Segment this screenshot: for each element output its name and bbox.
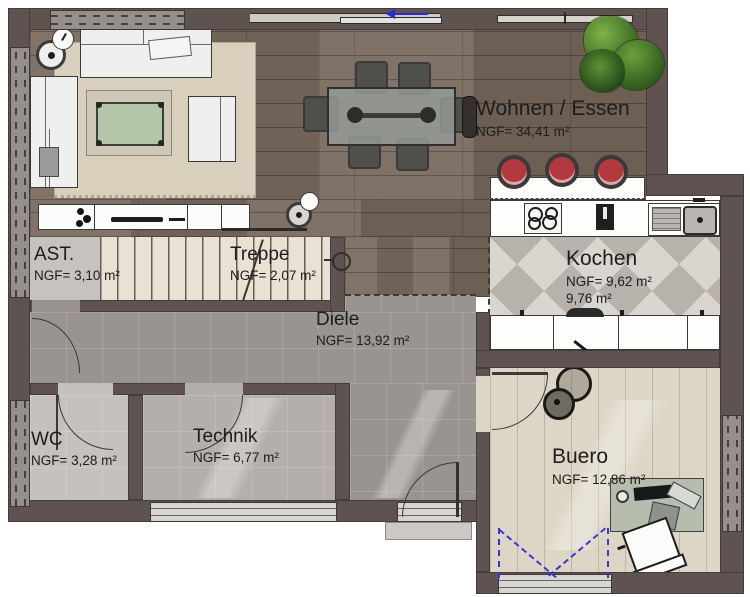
sideboard-divider	[221, 205, 222, 229]
wall-kitchen-bottom	[476, 350, 720, 368]
room-area: NGF= 3,28 m²	[31, 452, 117, 469]
outlet-symbol-stem	[324, 259, 333, 261]
lamp-tick	[61, 33, 67, 41]
sideboard	[38, 204, 250, 230]
lamp-icon	[52, 28, 74, 50]
sofa-back-line	[81, 44, 211, 45]
table-corner-dot	[158, 102, 164, 108]
soundbar	[111, 217, 163, 222]
decor-dot	[77, 208, 84, 215]
small-appliance	[596, 204, 614, 230]
cabinet-tick	[520, 310, 524, 316]
cabinet-divider	[687, 316, 688, 349]
room-area: NGF= 6,77 m²	[193, 449, 279, 466]
sofa	[80, 29, 212, 78]
hall-boundary-dashed-line	[345, 294, 476, 296]
wall-stairs-right	[330, 237, 345, 312]
floor-plan: Wohnen / Essen NGF= 34,41 m² AST. NGF= 3…	[0, 0, 750, 597]
room-label-technik: Technik NGF= 6,77 m²	[193, 425, 279, 467]
room-name: Diele	[316, 308, 409, 332]
burner	[542, 215, 557, 230]
table-corner-dot	[96, 140, 102, 146]
armchair	[188, 96, 236, 162]
outlet-symbol-icon	[332, 252, 351, 271]
office-door-opening	[476, 376, 490, 432]
room-area-2: 9,76 m²	[566, 290, 652, 307]
room-label-buero: Buero NGF= 12,86 m²	[552, 444, 645, 488]
room-area: NGF= 13,92 m²	[316, 332, 409, 349]
room-label-treppe: Treppe NGF= 2,07 m²	[230, 243, 316, 285]
appliance-slot	[603, 207, 607, 219]
lamp-dot	[48, 52, 55, 59]
desk-lamp-icon	[616, 490, 629, 503]
cabinet-divider	[553, 316, 554, 349]
room-name: AST.	[34, 243, 120, 267]
room-label-wohnen-essen: Wohnen / Essen NGF= 34,41 m²	[476, 96, 630, 140]
wall-wc-technik-divider	[128, 395, 143, 500]
lamp-dot	[554, 399, 560, 405]
cabinet-tick	[700, 310, 704, 316]
kitchen-boundary-dashed-line	[488, 237, 490, 315]
sofa-pillow	[148, 36, 192, 60]
slide-direction-arrow	[394, 13, 428, 15]
office-door-leaf	[492, 372, 548, 375]
room-area: NGF= 3,10 m²	[34, 267, 120, 284]
window-left-living	[10, 47, 30, 298]
table-leg	[420, 107, 436, 123]
room-area: NGF= 34,41 m²	[476, 123, 630, 140]
corner-sofa-pillow	[39, 147, 59, 177]
burner	[528, 217, 541, 230]
french-door-dashed-right	[607, 528, 609, 578]
room-label-kochen: Kochen NGF= 9,62 m² 9,76 m²	[566, 246, 652, 307]
dining-table	[327, 87, 456, 146]
decor-dot	[83, 215, 91, 223]
drainboard	[652, 207, 681, 231]
wall-technik-right	[335, 383, 350, 500]
room-name: Buero	[552, 444, 645, 471]
table-corner-dot	[158, 140, 164, 146]
technik-door-opening	[185, 383, 243, 395]
kitchen-lower-cabinets	[490, 315, 720, 350]
glazing-mullion	[564, 12, 566, 24]
room-label-wc: WC NGF= 3,28 m²	[31, 428, 117, 470]
room-area: NGF= 2,07 m²	[230, 267, 316, 284]
sofa-cushion-line	[143, 30, 144, 44]
decor-mark	[169, 218, 185, 221]
sink-unit	[648, 203, 720, 236]
coffee-table-glass	[96, 102, 164, 146]
wall-right-lower	[720, 196, 744, 594]
room-area: NGF= 9,62 m²	[566, 273, 652, 290]
lamp-icon	[300, 192, 319, 211]
plant	[580, 50, 624, 92]
window-left-wc	[10, 400, 30, 507]
stove	[524, 203, 562, 234]
room-name: WC	[31, 428, 117, 452]
sink-basin	[683, 206, 717, 235]
hood-icon	[566, 308, 604, 317]
sideboard-divider	[187, 205, 188, 229]
wc-door-opening	[58, 383, 113, 395]
shelf-line	[222, 228, 307, 231]
bar-stool	[497, 155, 531, 189]
wall-radiator	[462, 96, 477, 138]
room-name: Wohnen / Essen	[476, 96, 630, 123]
window-bottom-technik	[150, 502, 337, 522]
cabinet-tick	[620, 310, 624, 316]
table-leg	[347, 107, 363, 123]
storage-door-opening	[32, 300, 80, 312]
cabinet-divider	[618, 316, 619, 349]
wood-floor-right-of-stairs	[345, 237, 490, 297]
slide-arrow-head-icon	[386, 9, 395, 19]
wall-right-upper	[646, 8, 668, 196]
room-name: Kochen	[566, 246, 652, 273]
decor-dot	[76, 220, 83, 227]
sideboard-divider	[94, 205, 95, 229]
room-area: NGF= 12,86 m²	[552, 471, 645, 488]
room-name: Treppe	[230, 243, 316, 267]
faucet-icon	[693, 198, 705, 202]
sink-drain	[697, 217, 703, 223]
bar-stool	[594, 155, 628, 189]
bar-stool	[545, 153, 579, 187]
corner-sofa	[30, 76, 78, 188]
french-door-dashed-left	[498, 528, 500, 578]
floor-lamp-base	[543, 388, 575, 420]
wall-step	[646, 174, 744, 196]
room-name: Technik	[193, 425, 279, 449]
table-trestle-bar	[353, 113, 429, 118]
counter-dashed-line	[490, 198, 645, 199]
armchair-back-line	[220, 97, 221, 161]
window-right-office	[722, 415, 742, 532]
entry-door-leaf	[456, 462, 459, 517]
table-corner-dot	[96, 102, 102, 108]
lamp-dot	[296, 212, 302, 218]
room-label-ast: AST. NGF= 3,10 m²	[34, 243, 120, 285]
window-top-left	[50, 10, 185, 30]
room-label-diele: Diele NGF= 13,92 m²	[316, 308, 409, 350]
entry-step	[385, 522, 472, 540]
